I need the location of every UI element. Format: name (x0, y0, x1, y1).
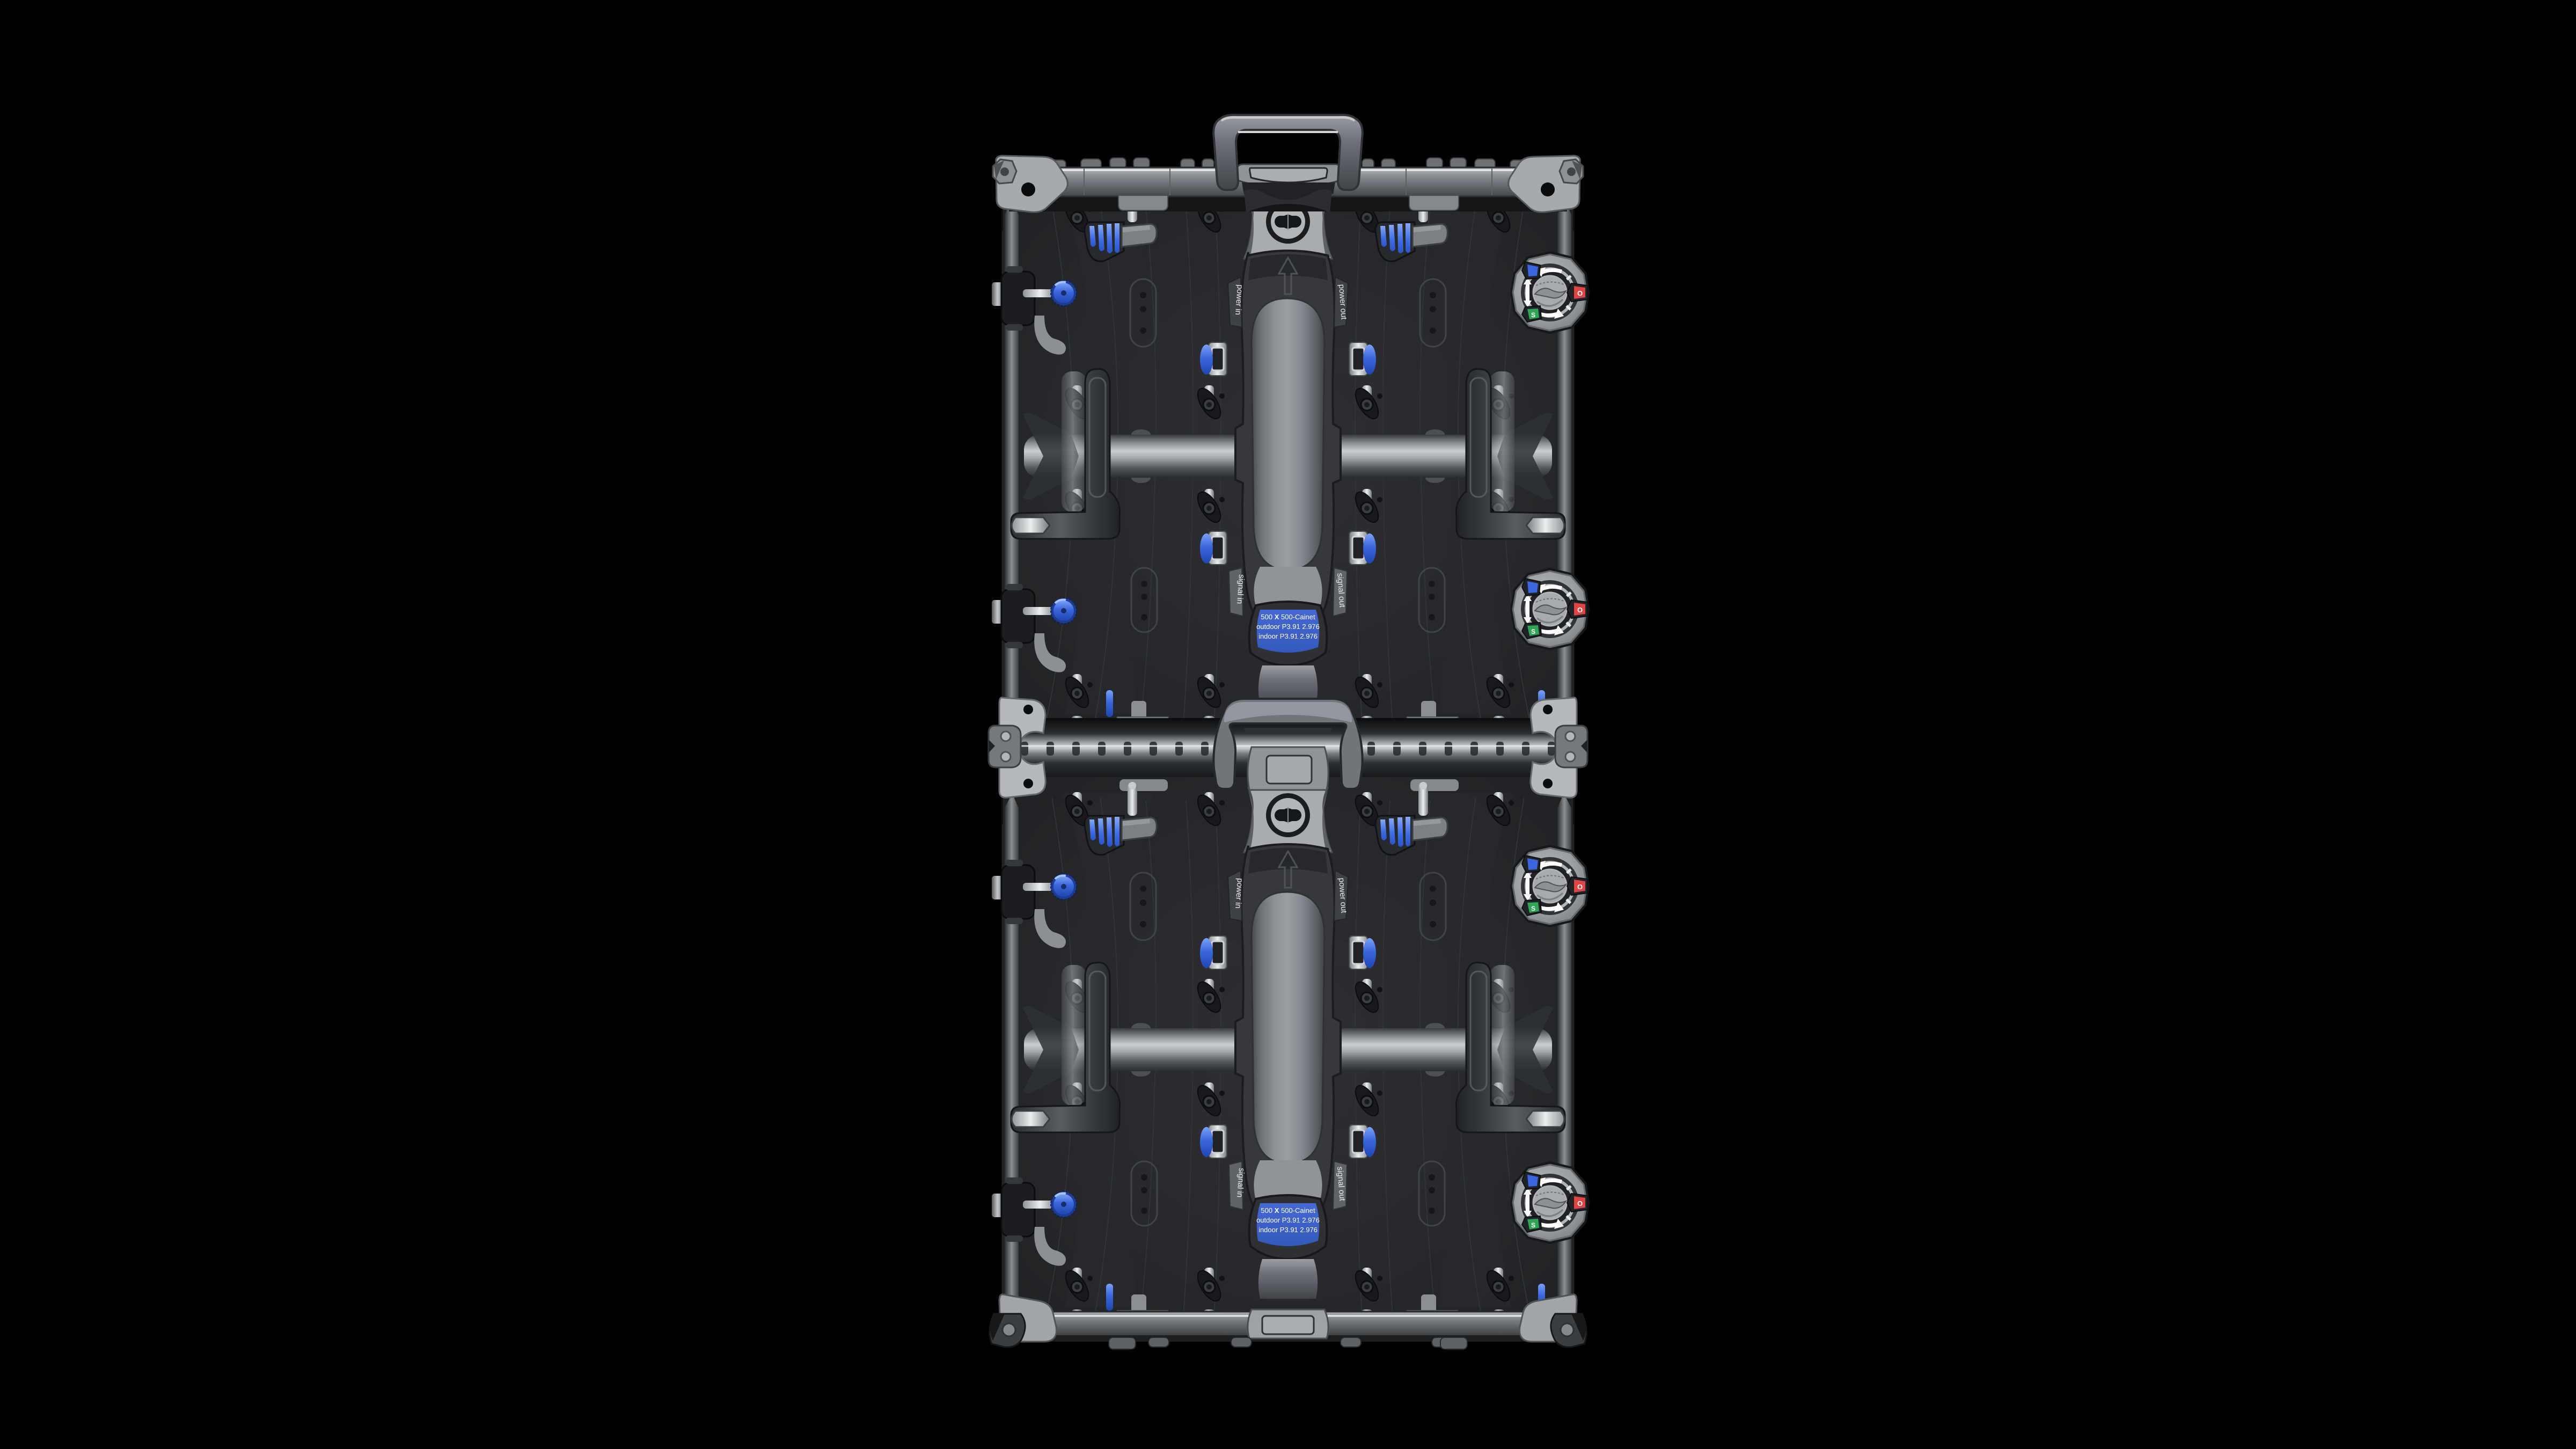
svg-text:indoor P3.91 2.976: indoor P3.91 2.976 (1258, 632, 1318, 640)
svg-text:O: O (1577, 289, 1583, 297)
svg-text:500 X 500-Cainet: 500 X 500-Cainet (1261, 613, 1315, 621)
svg-text:S: S (1531, 311, 1535, 319)
svg-text:outdoor P3.91 2.976: outdoor P3.91 2.976 (1256, 623, 1320, 631)
